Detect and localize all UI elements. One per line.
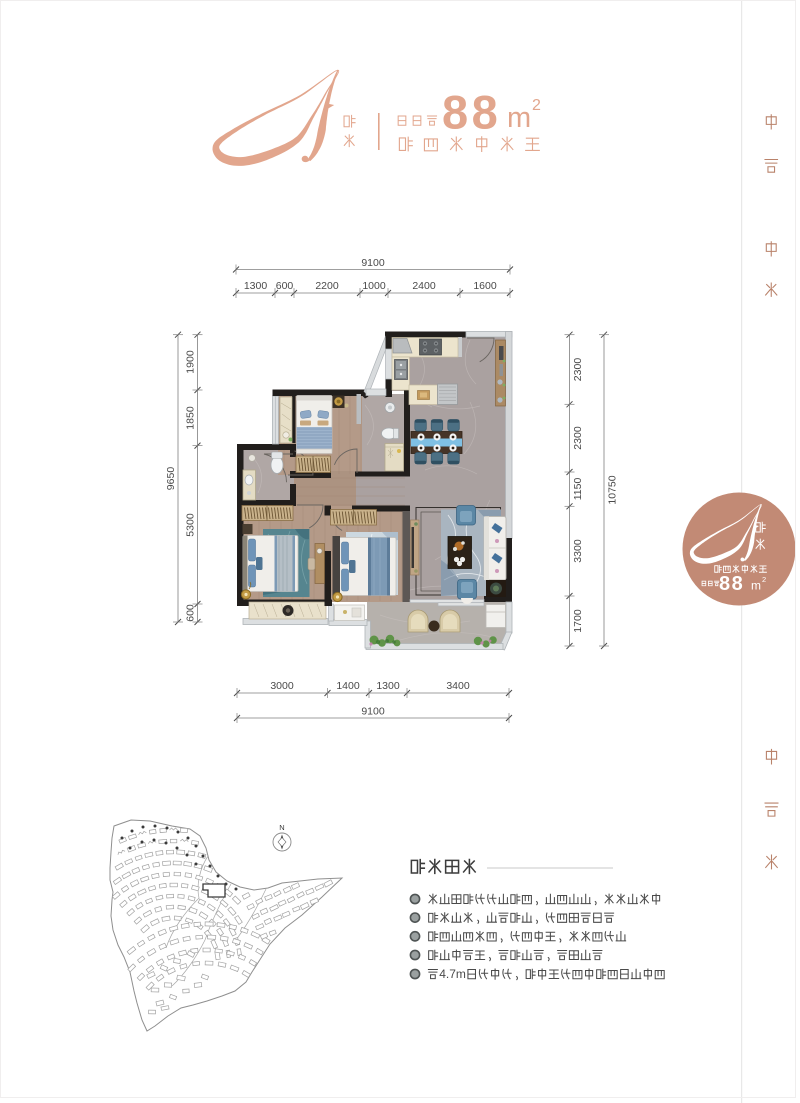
svg-text:1300: 1300: [376, 680, 400, 692]
svg-text:1900: 1900: [185, 350, 197, 374]
svg-text:3300: 3300: [572, 539, 584, 563]
svg-text:1400: 1400: [336, 680, 360, 692]
svg-text:2300: 2300: [572, 358, 584, 382]
svg-text:4.7m: 4.7m: [439, 967, 466, 981]
svg-text:2: 2: [532, 97, 541, 114]
svg-text:3400: 3400: [446, 680, 470, 692]
svg-text:9100: 9100: [361, 706, 385, 718]
svg-text:1700: 1700: [572, 609, 584, 633]
svg-text:m: m: [751, 579, 761, 593]
svg-text:3000: 3000: [270, 680, 294, 692]
svg-text:1850: 1850: [185, 406, 197, 430]
svg-text:1150: 1150: [572, 478, 584, 501]
svg-text:10750: 10750: [607, 475, 619, 504]
svg-text:2: 2: [762, 575, 766, 584]
svg-text:5300: 5300: [185, 513, 197, 537]
svg-text:600: 600: [276, 280, 294, 292]
svg-text:2200: 2200: [315, 280, 339, 292]
svg-text:88: 88: [719, 573, 744, 595]
svg-text:N: N: [279, 823, 284, 832]
svg-text:1600: 1600: [473, 280, 497, 292]
svg-text:9650: 9650: [165, 467, 177, 491]
svg-text:1000: 1000: [362, 280, 386, 292]
svg-text:9100: 9100: [361, 257, 385, 269]
svg-text:2300: 2300: [572, 426, 584, 450]
svg-text:2400: 2400: [412, 280, 436, 292]
svg-text:600: 600: [185, 604, 197, 622]
svg-text:m: m: [507, 102, 531, 134]
svg-text:1300: 1300: [244, 280, 268, 292]
svg-text:88: 88: [442, 86, 501, 139]
